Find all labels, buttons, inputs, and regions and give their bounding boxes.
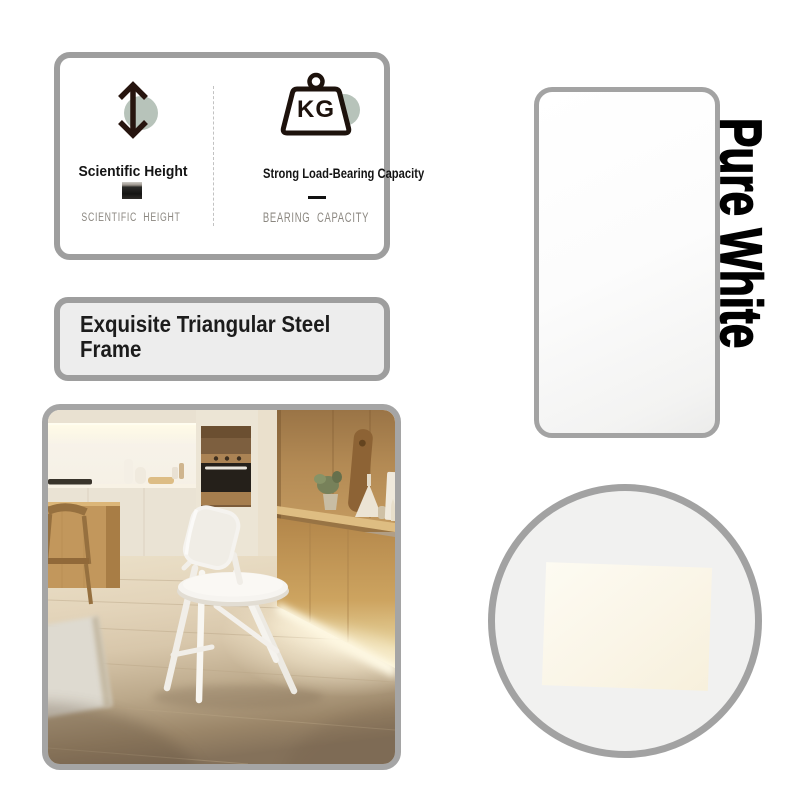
- svg-text:KG: KG: [297, 96, 335, 123]
